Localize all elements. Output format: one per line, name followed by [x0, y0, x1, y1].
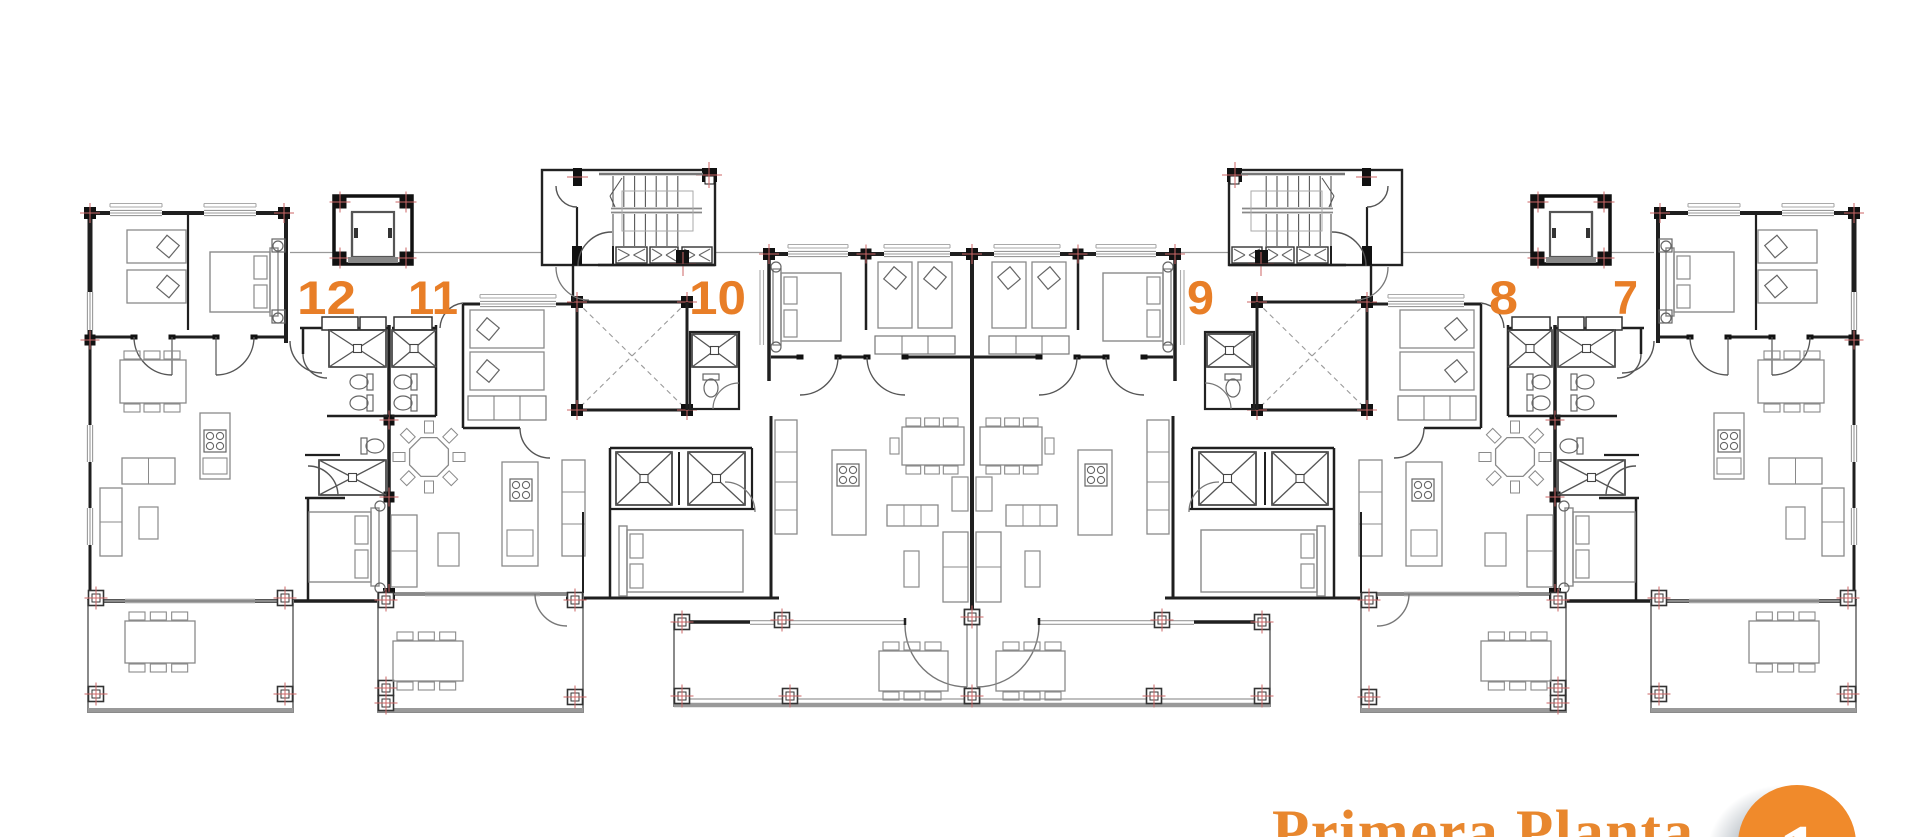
svg-text:10: 10: [689, 271, 746, 324]
svg-text:7: 7: [1613, 271, 1638, 324]
svg-text:12: 12: [297, 271, 356, 324]
svg-text:8: 8: [1489, 271, 1518, 324]
svg-text:9: 9: [1187, 271, 1214, 324]
svg-text:Primera Planta: Primera Planta: [1272, 799, 1694, 837]
svg-text:1: 1: [1778, 808, 1820, 837]
svg-text:11: 11: [408, 271, 458, 324]
